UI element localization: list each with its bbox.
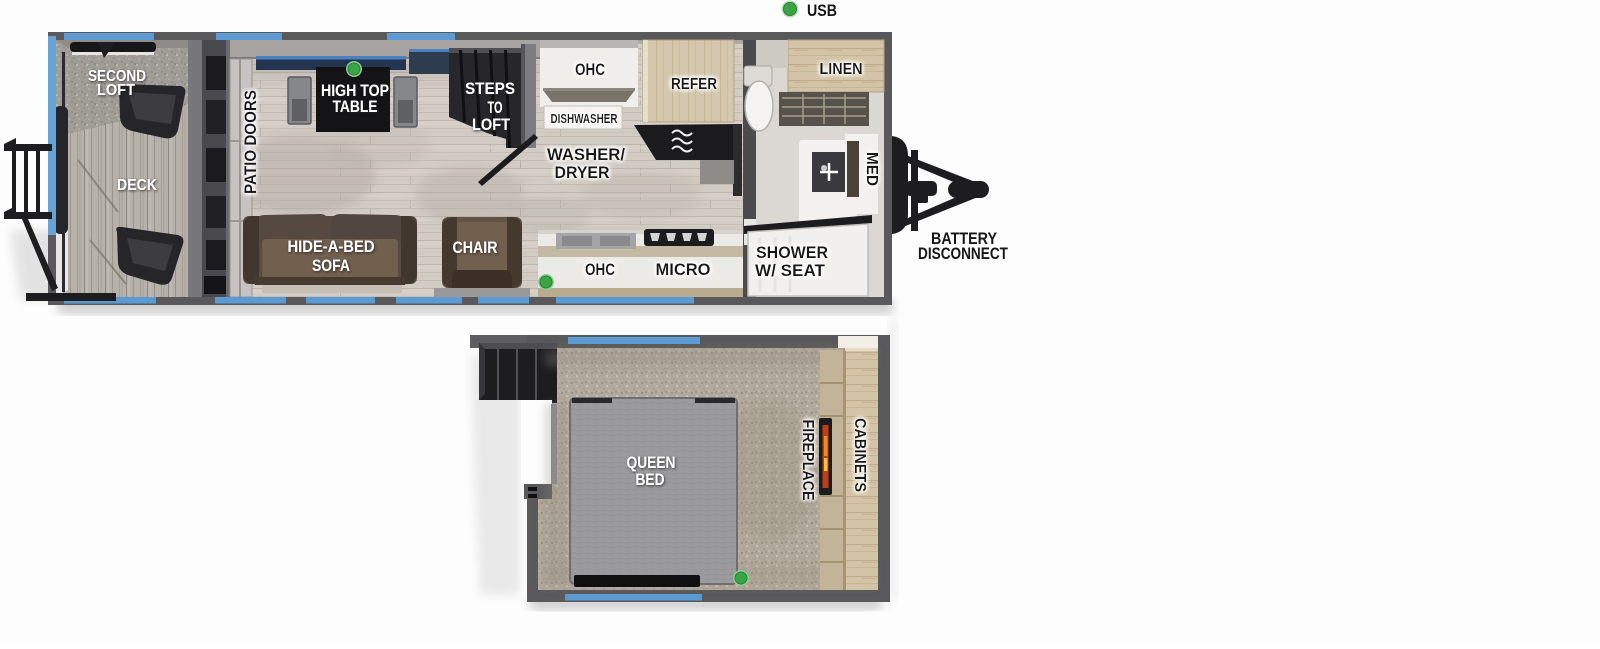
- svg-text:LOFT: LOFT: [97, 82, 135, 99]
- svg-text:TABLE: TABLE: [333, 97, 378, 116]
- svg-text:WASHER/: WASHER/: [547, 145, 625, 164]
- svg-text:DRYER: DRYER: [555, 163, 610, 182]
- svg-text:REFER: REFER: [671, 76, 717, 93]
- svg-text:SOFA: SOFA: [312, 256, 350, 275]
- svg-text:CABINETS: CABINETS: [851, 418, 868, 492]
- svg-text:OHC: OHC: [575, 60, 605, 79]
- svg-text:MED: MED: [863, 152, 880, 186]
- svg-text:LINEN: LINEN: [820, 61, 863, 78]
- svg-text:FIREPLACE: FIREPLACE: [799, 420, 816, 501]
- svg-text:OHC: OHC: [585, 260, 615, 279]
- svg-text:LOFT: LOFT: [472, 115, 511, 134]
- svg-text:MICRO: MICRO: [656, 260, 711, 279]
- svg-text:DISHWASHER: DISHWASHER: [551, 111, 618, 126]
- svg-text:DISCONNECT: DISCONNECT: [918, 244, 1008, 263]
- svg-text:DECK: DECK: [117, 177, 157, 194]
- svg-text:PATIO DOORS: PATIO DOORS: [241, 90, 260, 194]
- svg-text:W/ SEAT: W/ SEAT: [755, 261, 826, 280]
- svg-text:HIDE-A-BED: HIDE-A-BED: [288, 237, 375, 256]
- svg-text:SHOWER: SHOWER: [756, 243, 828, 262]
- svg-text:BED: BED: [636, 470, 665, 489]
- svg-text:CHAIR: CHAIR: [453, 238, 498, 257]
- svg-text:USB: USB: [807, 1, 837, 20]
- svg-text:STEPS: STEPS: [465, 79, 515, 98]
